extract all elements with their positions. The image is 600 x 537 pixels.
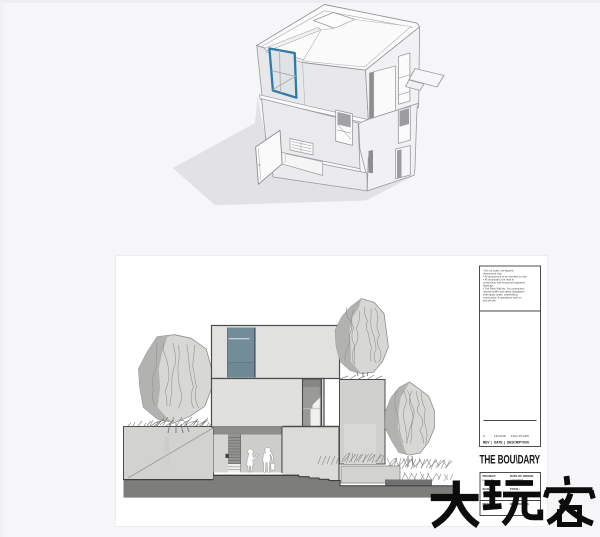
svg-text:DATE: DATE: [494, 441, 502, 445]
svg-text:REV: REV: [483, 441, 490, 445]
svg-text:14/12/18: 14/12/18: [494, 434, 506, 438]
svg-text:FULL PLANS: FULL PLANS: [511, 434, 529, 438]
svg-text:DESCRIPTION: DESCRIPTION: [507, 441, 529, 445]
svg-text:PROJECT: PROJECT: [483, 474, 497, 478]
svg-text:and off site.: and off site.: [483, 299, 497, 303]
svg-text:|: |: [491, 441, 492, 445]
svg-text:|: |: [504, 441, 505, 445]
svg-text:TOTAL:: TOTAL:: [510, 487, 520, 491]
svg-text:A: A: [483, 434, 485, 438]
svg-text:DATE OF ORIGIN:: DATE OF ORIGIN:: [510, 474, 534, 478]
svg-text:THE BOU\DARY: THE BOU\DARY: [480, 453, 541, 467]
